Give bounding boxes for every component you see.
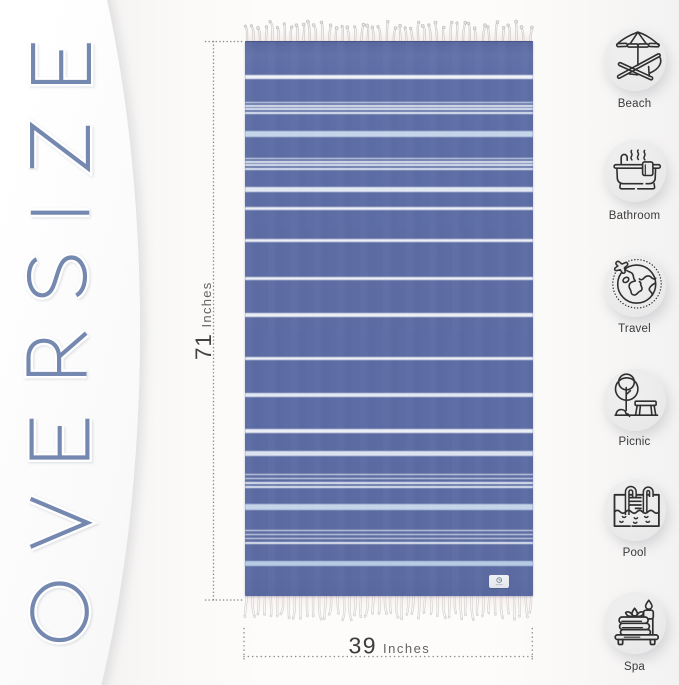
svg-text:Inches: Inches	[199, 281, 214, 327]
svg-text:71: 71	[191, 333, 216, 360]
svg-text:39: 39	[349, 633, 378, 659]
svg-text:Inches: Inches	[383, 641, 430, 656]
